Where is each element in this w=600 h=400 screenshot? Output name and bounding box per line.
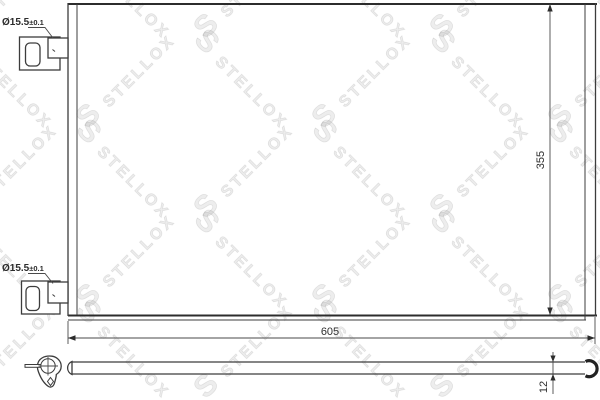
port-bottom-label: Ø15.5±0.1 bbox=[2, 263, 44, 274]
port-top-opening bbox=[26, 43, 41, 66]
port-top-diameter-text: Ø15.5 bbox=[2, 17, 30, 28]
port-fitting-bottom: Ø15.5±0.1 bbox=[2, 263, 68, 314]
port-top-tube bbox=[48, 38, 68, 58]
technical-drawing-page: S STELLOXS STELLOXS STELLOXS STELLOXS ST… bbox=[0, 0, 600, 400]
port-bottom-tube bbox=[48, 282, 68, 303]
port-bottom-opening bbox=[26, 287, 40, 311]
side-right-end-cap bbox=[586, 361, 598, 377]
height-dimension: 355 bbox=[535, 4, 553, 315]
width-dimension-arrow-right bbox=[588, 335, 596, 340]
side-view: 12 bbox=[25, 352, 597, 394]
side-fitting bbox=[25, 356, 61, 387]
width-dimension-label: 605 bbox=[321, 326, 339, 338]
port-top-label: Ø15.5±0.1 bbox=[2, 17, 44, 28]
width-dimension-arrow-left bbox=[68, 335, 76, 340]
depth-dimension-arrow-top bbox=[550, 356, 555, 363]
height-dimension-arrow-top bbox=[547, 4, 552, 12]
port-top-tolerance-text: ±0.1 bbox=[29, 18, 44, 27]
side-bar-left-end-arc bbox=[68, 362, 72, 375]
port-bottom-tolerance-text: ±0.1 bbox=[29, 264, 44, 273]
condenser-technical-drawing: 355 605 Ø15.5±0.1 bbox=[0, 0, 600, 400]
side-bracket-hole bbox=[48, 378, 54, 386]
depth-dimension-arrow-bottom bbox=[550, 374, 555, 381]
port-bottom-diameter-text: Ø15.5 bbox=[2, 263, 30, 274]
front-view: 355 605 Ø15.5±0.1 bbox=[2, 3, 597, 344]
depth-dimension: 12 bbox=[538, 352, 556, 394]
height-dimension-arrow-bottom bbox=[547, 308, 552, 316]
width-dimension: 605 bbox=[68, 317, 595, 344]
depth-dimension-label: 12 bbox=[538, 381, 550, 393]
height-dimension-label: 355 bbox=[535, 151, 547, 169]
port-fitting-top: Ø15.5±0.1 bbox=[2, 17, 68, 70]
